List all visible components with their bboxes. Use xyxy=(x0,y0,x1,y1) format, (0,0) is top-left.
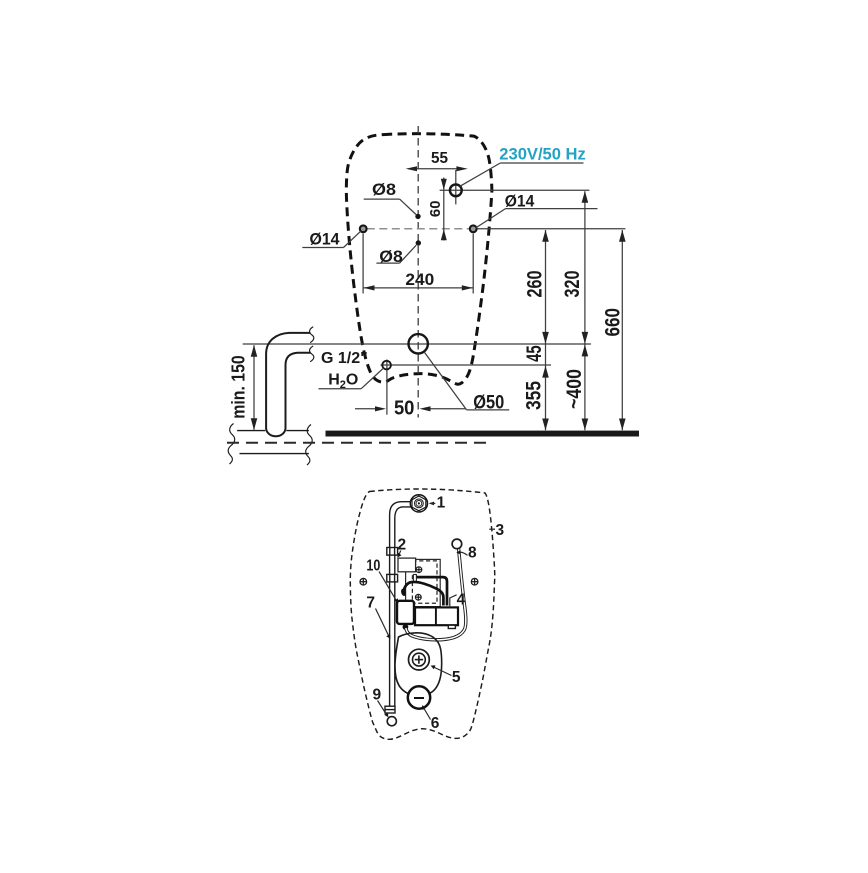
svg-text:2: 2 xyxy=(398,537,407,554)
svg-text:10: 10 xyxy=(366,557,380,574)
svg-text:Ø50: Ø50 xyxy=(473,392,504,413)
svg-text:260: 260 xyxy=(523,271,546,298)
svg-text:5: 5 xyxy=(452,669,461,686)
svg-text:240: 240 xyxy=(405,270,434,289)
svg-text:230V/50 Hz: 230V/50 Hz xyxy=(499,144,586,163)
svg-text:7: 7 xyxy=(366,595,375,612)
svg-text:Ø14: Ø14 xyxy=(310,229,341,248)
svg-text:Ø8: Ø8 xyxy=(372,180,396,199)
svg-text:min. 150: min. 150 xyxy=(228,355,248,419)
svg-text:Ø8: Ø8 xyxy=(379,247,403,266)
svg-text:3: 3 xyxy=(496,522,505,539)
svg-text:320: 320 xyxy=(561,271,584,298)
svg-text:355: 355 xyxy=(523,381,546,410)
svg-text:4: 4 xyxy=(457,592,466,609)
svg-text:60: 60 xyxy=(427,201,444,218)
svg-text:660: 660 xyxy=(601,308,624,337)
svg-text:~400: ~400 xyxy=(563,369,586,409)
svg-text:8: 8 xyxy=(468,545,477,562)
svg-text:50: 50 xyxy=(394,398,415,420)
svg-text:1: 1 xyxy=(437,494,446,511)
svg-text:55: 55 xyxy=(431,150,448,167)
svg-text:Ø14: Ø14 xyxy=(505,191,535,210)
svg-text:G 1/2": G 1/2" xyxy=(321,350,368,367)
svg-text:45: 45 xyxy=(523,345,546,362)
svg-text:6: 6 xyxy=(431,715,440,732)
svg-text:9: 9 xyxy=(373,686,382,703)
